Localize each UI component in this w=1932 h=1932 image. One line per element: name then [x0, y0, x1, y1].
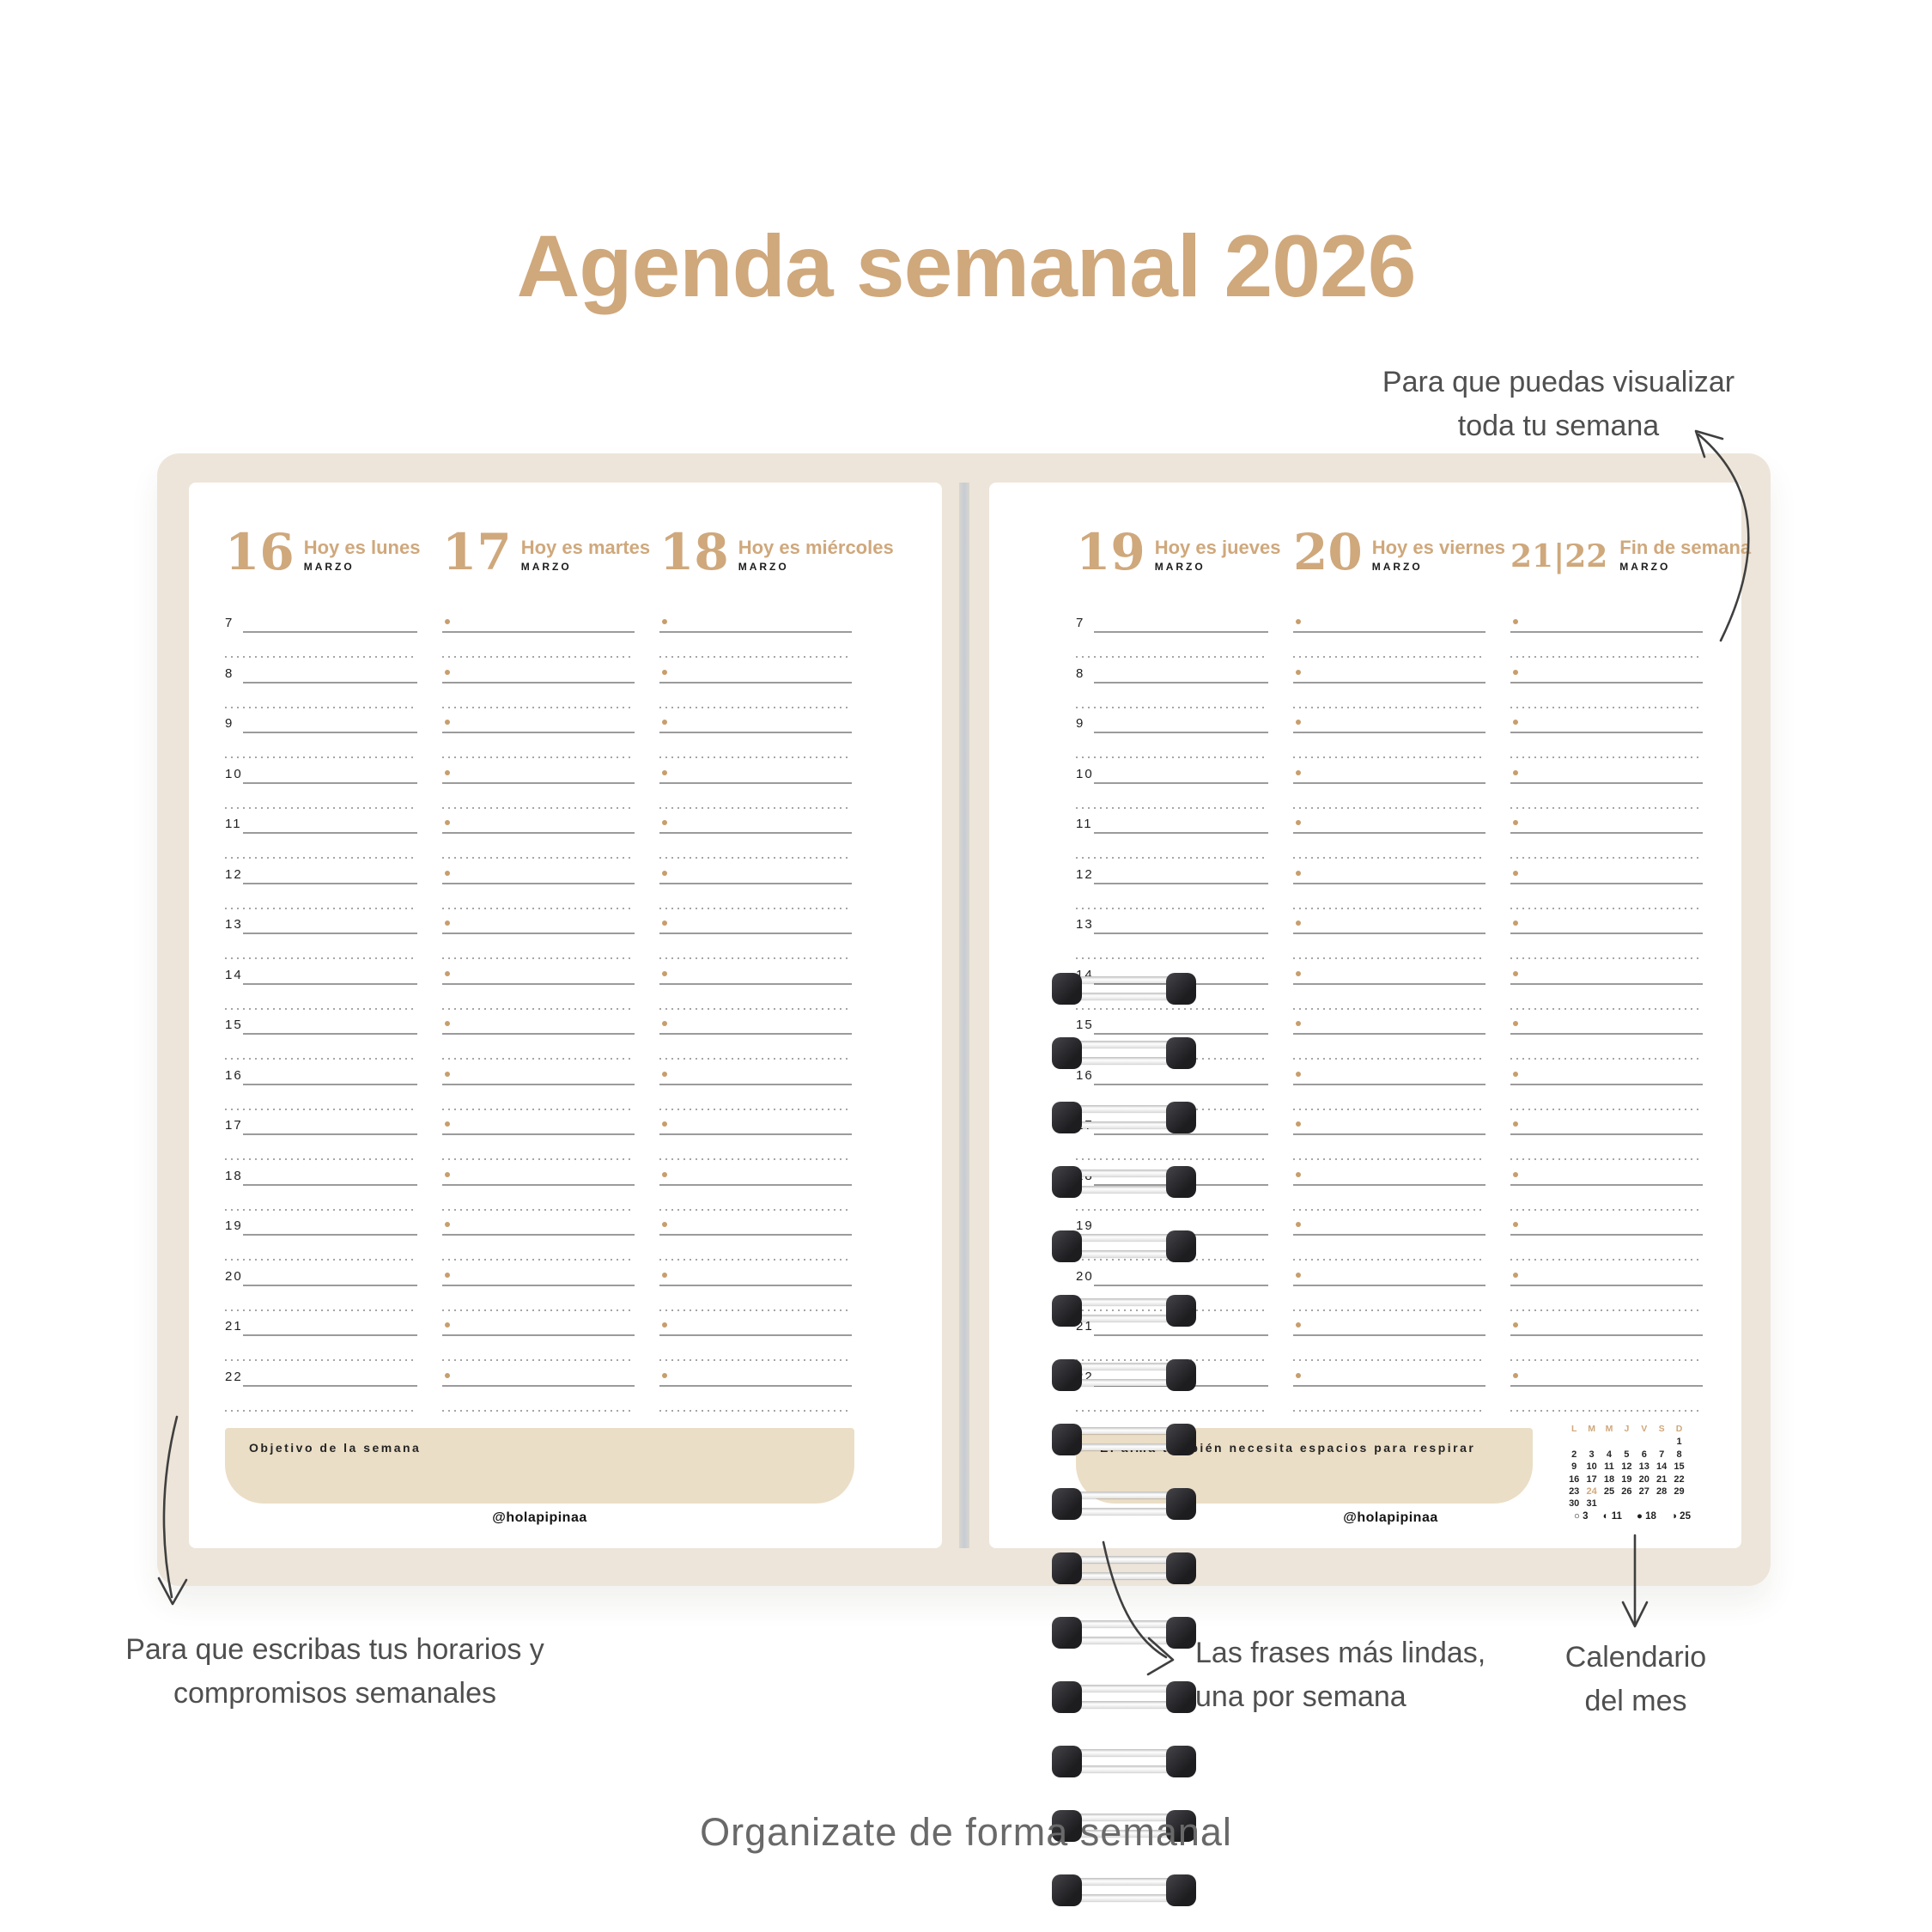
hour-bullet: [1513, 1273, 1518, 1278]
half-hour-dotted-line: [225, 957, 417, 959]
annotation-month-calendar: Calendario del mes: [1507, 1636, 1765, 1723]
hour-bullet: [662, 971, 667, 976]
hour-label: 12: [225, 868, 243, 881]
ring-wire: [1062, 1894, 1186, 1901]
hour-line: [442, 832, 635, 834]
hour-line: [1510, 682, 1703, 683]
hour-bullet: [445, 1021, 450, 1026]
hour-line: [243, 1285, 417, 1286]
hour-line: [659, 682, 852, 683]
hour-line: [243, 832, 417, 834]
hour-line: [1293, 883, 1485, 884]
hour-bullet: [662, 619, 667, 624]
hour-label: 7: [225, 617, 234, 629]
half-hour-dotted-line: [1293, 1359, 1485, 1361]
hour-label: 22: [225, 1370, 243, 1383]
ring-wire: [1062, 1572, 1186, 1579]
day-label: Hoy es martes: [521, 538, 650, 557]
hour-line: [243, 782, 417, 784]
hour-line: [1510, 933, 1703, 934]
page-title: Agenda semanal 2026: [0, 216, 1932, 317]
hour-line: [1094, 1385, 1268, 1387]
half-hour-dotted-line: [442, 1109, 635, 1110]
hour-bullet: [1513, 820, 1518, 825]
hour-bullet: [1296, 1222, 1301, 1227]
hour-bullet: [1296, 1121, 1301, 1127]
half-hour-dotted-line: [1293, 1008, 1485, 1010]
half-hour-dotted-line: [225, 707, 417, 708]
half-hour-dotted-line: [1076, 957, 1268, 959]
hour-line: [442, 682, 635, 683]
hour-line: [659, 983, 852, 985]
hour-line: [1510, 832, 1703, 834]
page-gap-seam: [959, 483, 969, 1548]
binding-ring: [1052, 1552, 1196, 1584]
ring-hole: [1052, 1746, 1082, 1777]
hour-bullet: [445, 1322, 450, 1327]
notebook: Objetivo de la semana @holapipinaa 16Hoy…: [157, 453, 1771, 1586]
hour-line: [1293, 1334, 1485, 1336]
day-header: 20Hoy es viernesMARZO: [1293, 527, 1505, 577]
half-hour-dotted-line: [1076, 756, 1268, 758]
hour-line: [442, 933, 635, 934]
half-hour-dotted-line: [1293, 957, 1485, 959]
hour-line: [1293, 682, 1485, 683]
hour-bullet: [445, 820, 450, 825]
hour-line: [243, 732, 417, 733]
half-hour-dotted-line: [1510, 1008, 1703, 1010]
hour-line: [659, 1133, 852, 1135]
half-hour-dotted-line: [659, 756, 852, 758]
half-hour-dotted-line: [1293, 857, 1485, 859]
hour-bullet: [445, 971, 450, 976]
half-hour-dotted-line: [225, 1309, 417, 1311]
hour-bullet: [445, 871, 450, 876]
hour-bullet: [662, 1373, 667, 1378]
ring-wire: [1062, 1765, 1186, 1772]
hour-label: 21: [1076, 1320, 1094, 1333]
half-hour-dotted-line: [1076, 908, 1268, 909]
ring-hole: [1052, 1874, 1082, 1906]
hour-bullet: [662, 871, 667, 876]
half-hour-dotted-line: [1076, 1058, 1268, 1060]
hour-label: 22: [1076, 1370, 1094, 1383]
hour-bullet: [1296, 971, 1301, 976]
hour-line: [1094, 1334, 1268, 1336]
half-hour-dotted-line: [1510, 1259, 1703, 1261]
day-number: 16: [225, 527, 295, 577]
hour-bullet: [1296, 1273, 1301, 1278]
half-hour-dotted-line: [1510, 1359, 1703, 1361]
hour-label: 9: [225, 717, 234, 730]
bottom-caption: Organizate de forma semanal: [0, 1810, 1932, 1855]
half-hour-dotted-line: [225, 1410, 417, 1412]
hour-bullet: [662, 1121, 667, 1127]
hour-line: [1510, 1133, 1703, 1135]
half-hour-dotted-line: [225, 1359, 417, 1361]
half-hour-dotted-line: [442, 1008, 635, 1010]
hour-label: 11: [225, 817, 242, 830]
day-number: 21|22: [1510, 527, 1607, 572]
half-hour-dotted-line: [1510, 1058, 1703, 1060]
hour-line: [1510, 631, 1703, 633]
day-column: 21|22Fin de semanaMARZO: [1510, 483, 1703, 1548]
half-hour-dotted-line: [1293, 1309, 1485, 1311]
hour-label: 8: [225, 667, 234, 680]
half-hour-dotted-line: [442, 656, 635, 658]
hour-label: 14: [1076, 969, 1094, 981]
hour-bullet: [1513, 1322, 1518, 1327]
hour-line: [1293, 983, 1485, 985]
hour-line: [1293, 832, 1485, 834]
half-hour-dotted-line: [1510, 1209, 1703, 1211]
hour-line: [659, 1285, 852, 1286]
half-hour-dotted-line: [442, 1359, 635, 1361]
hour-line: [1094, 983, 1268, 985]
hour-line: [1094, 1133, 1268, 1135]
hour-line: [1094, 1234, 1268, 1236]
hour-line: [442, 1334, 635, 1336]
hour-line: [442, 1234, 635, 1236]
hour-line: [243, 1133, 417, 1135]
hour-line: [1293, 1133, 1485, 1135]
annotation-line: toda tu semana: [1357, 404, 1760, 448]
half-hour-dotted-line: [1510, 656, 1703, 658]
day-number: 20: [1293, 527, 1363, 577]
day-header: 16Hoy es lunesMARZO: [225, 527, 420, 577]
hour-bullet: [1513, 1222, 1518, 1227]
hour-label: 19: [1076, 1219, 1094, 1232]
hour-line: [243, 682, 417, 683]
half-hour-dotted-line: [659, 707, 852, 708]
hour-line: [1094, 782, 1268, 784]
half-hour-dotted-line: [225, 857, 417, 859]
ring-hole: [1166, 1681, 1196, 1713]
half-hour-dotted-line: [442, 756, 635, 758]
half-hour-dotted-line: [659, 1359, 852, 1361]
day-month-label: MARZO: [1619, 562, 1751, 572]
ring-hole: [1166, 1617, 1196, 1649]
half-hour-dotted-line: [1076, 1309, 1268, 1311]
hour-label: 11: [1076, 817, 1093, 830]
hour-line: [1293, 1234, 1485, 1236]
hour-line: [1094, 1084, 1268, 1085]
hour-bullet: [1296, 619, 1301, 624]
hour-label: 17: [1076, 1119, 1094, 1132]
half-hour-dotted-line: [442, 807, 635, 809]
hour-bullet: [1513, 920, 1518, 926]
hour-bullet: [1296, 1322, 1301, 1327]
hour-line: [442, 1285, 635, 1286]
hour-bullet: [1513, 971, 1518, 976]
hour-line: [659, 782, 852, 784]
day-label: Hoy es miércoles: [738, 538, 894, 557]
day-texts: Hoy es lunesMARZO: [304, 527, 421, 572]
half-hour-dotted-line: [659, 908, 852, 909]
day-label: Hoy es viernes: [1372, 538, 1505, 557]
half-hour-dotted-line: [1076, 1410, 1268, 1412]
half-hour-dotted-line: [659, 1109, 852, 1110]
half-hour-dotted-line: [442, 857, 635, 859]
hour-bullet: [1296, 1072, 1301, 1077]
annotation-line: del mes: [1507, 1680, 1765, 1723]
hour-bullet: [1296, 871, 1301, 876]
half-hour-dotted-line: [442, 908, 635, 909]
hour-bullet: [1296, 1172, 1301, 1177]
hour-bullet: [445, 920, 450, 926]
annotation-line: Calendario: [1507, 1636, 1765, 1680]
hour-line: [243, 631, 417, 633]
hour-bullet: [1513, 770, 1518, 775]
hour-line: [1293, 1033, 1485, 1035]
ring-wire: [1062, 1685, 1186, 1692]
page-left-content: Objetivo de la semana @holapipinaa 16Hoy…: [225, 483, 854, 1548]
half-hour-dotted-line: [1510, 1109, 1703, 1110]
hour-bullet: [445, 1222, 450, 1227]
half-hour-dotted-line: [225, 1259, 417, 1261]
half-hour-dotted-line: [659, 1158, 852, 1160]
half-hour-dotted-line: [225, 1109, 417, 1110]
hour-bullet: [662, 1222, 667, 1227]
half-hour-dotted-line: [659, 957, 852, 959]
hour-line: [442, 631, 635, 633]
hour-line: [442, 883, 635, 884]
ring-wire: [1062, 1556, 1186, 1563]
hour-line: [243, 883, 417, 884]
half-hour-dotted-line: [1293, 807, 1485, 809]
annotation-line: Para que puedas visualizar: [1357, 361, 1760, 404]
notebook-page-right: El alma también necesita espacios para r…: [989, 483, 1741, 1548]
half-hour-dotted-line: [442, 1158, 635, 1160]
hour-label: 17: [225, 1119, 243, 1132]
hour-line: [659, 1184, 852, 1186]
hour-line: [1510, 1334, 1703, 1336]
hour-bullet: [1296, 670, 1301, 675]
half-hour-dotted-line: [1510, 908, 1703, 909]
hour-line: [659, 832, 852, 834]
hour-line: [1293, 1285, 1485, 1286]
half-hour-dotted-line: [1510, 807, 1703, 809]
hour-line: [1094, 933, 1268, 934]
hour-bullet: [662, 1021, 667, 1026]
hour-label: 15: [225, 1018, 243, 1031]
half-hour-dotted-line: [1510, 857, 1703, 859]
half-hour-dotted-line: [1293, 1158, 1485, 1160]
hour-line: [442, 1033, 635, 1035]
ring-wire: [1062, 1701, 1186, 1708]
hour-label: 16: [225, 1069, 243, 1082]
half-hour-dotted-line: [1293, 908, 1485, 909]
hour-line: [1510, 782, 1703, 784]
page-right-content: El alma también necesita espacios para r…: [1076, 483, 1705, 1548]
half-hour-dotted-line: [1293, 707, 1485, 708]
half-hour-dotted-line: [1076, 1158, 1268, 1160]
hour-bullet: [445, 720, 450, 725]
hour-bullet: [1296, 820, 1301, 825]
ring-wire: [1062, 1637, 1186, 1643]
hour-label: 8: [1076, 667, 1084, 680]
annotation-line: Para que escribas tus horarios y: [77, 1628, 592, 1672]
half-hour-dotted-line: [1076, 1359, 1268, 1361]
hour-bullet: [1513, 1172, 1518, 1177]
half-hour-dotted-line: [1293, 1109, 1485, 1110]
hour-line: [1094, 732, 1268, 733]
half-hour-dotted-line: [1076, 1209, 1268, 1211]
hour-bullet: [1513, 720, 1518, 725]
day-month-label: MARZO: [304, 562, 421, 572]
hour-label: 7: [1076, 617, 1084, 629]
hour-bullet: [1513, 1373, 1518, 1378]
hour-bullet: [662, 770, 667, 775]
day-texts: Hoy es viernesMARZO: [1372, 527, 1505, 572]
half-hour-dotted-line: [1510, 1309, 1703, 1311]
half-hour-dotted-line: [1076, 807, 1268, 809]
half-hour-dotted-line: [225, 1158, 417, 1160]
hour-bullet: [1296, 920, 1301, 926]
hour-line: [243, 1184, 417, 1186]
hour-line: [659, 883, 852, 884]
hour-line: [659, 1385, 852, 1387]
hour-label: 21: [225, 1320, 243, 1333]
hour-label: 14: [225, 969, 243, 981]
half-hour-dotted-line: [225, 807, 417, 809]
half-hour-dotted-line: [1293, 1259, 1485, 1261]
hour-line: [1094, 883, 1268, 884]
hour-bullet: [1513, 670, 1518, 675]
day-column: 16Hoy es lunesMARZO789101112131415161718…: [225, 483, 417, 1548]
hour-bullet: [662, 820, 667, 825]
ring-hole: [1166, 1746, 1196, 1777]
day-number: 17: [442, 527, 512, 577]
half-hour-dotted-line: [442, 1058, 635, 1060]
hour-label: 15: [1076, 1018, 1094, 1031]
half-hour-dotted-line: [1293, 756, 1485, 758]
notebook-page-left: Objetivo de la semana @holapipinaa 16Hoy…: [189, 483, 942, 1548]
binding-ring: [1052, 1617, 1196, 1649]
hour-label: 20: [1076, 1270, 1094, 1283]
hour-line: [1510, 732, 1703, 733]
ring-wire: [1062, 1878, 1186, 1885]
half-hour-dotted-line: [1076, 707, 1268, 708]
half-hour-dotted-line: [659, 1259, 852, 1261]
annotation-schedule: Para que escribas tus horarios y comprom…: [77, 1628, 592, 1716]
half-hour-dotted-line: [659, 1309, 852, 1311]
half-hour-dotted-line: [1293, 656, 1485, 658]
hour-label: 10: [225, 768, 243, 781]
day-label: Fin de semana: [1619, 538, 1751, 557]
half-hour-dotted-line: [442, 957, 635, 959]
hour-line: [442, 782, 635, 784]
hour-bullet: [1513, 1021, 1518, 1026]
half-hour-dotted-line: [225, 1209, 417, 1211]
ring-hole: [1052, 1552, 1082, 1584]
half-hour-dotted-line: [1510, 1410, 1703, 1412]
hour-bullet: [445, 1373, 450, 1378]
hour-bullet: [445, 670, 450, 675]
day-label: Hoy es jueves: [1155, 538, 1281, 557]
day-column: 20Hoy es viernesMARZO: [1293, 483, 1485, 1548]
hour-line: [659, 1033, 852, 1035]
hour-line: [659, 933, 852, 934]
half-hour-dotted-line: [659, 1008, 852, 1010]
half-hour-dotted-line: [1076, 1259, 1268, 1261]
half-hour-dotted-line: [442, 1309, 635, 1311]
day-header: 18Hoy es miércolesMARZO: [659, 527, 894, 577]
ring-wire: [1062, 1749, 1186, 1756]
half-hour-dotted-line: [1076, 1008, 1268, 1010]
hour-label: 13: [225, 918, 243, 931]
half-hour-dotted-line: [442, 1209, 635, 1211]
hour-bullet: [445, 1121, 450, 1127]
half-hour-dotted-line: [225, 1058, 417, 1060]
hour-line: [1094, 1285, 1268, 1286]
hour-line: [1510, 1285, 1703, 1286]
hour-line: [243, 1084, 417, 1085]
hour-line: [1510, 1033, 1703, 1035]
hour-bullet: [1296, 1021, 1301, 1026]
hour-line: [1094, 1184, 1268, 1186]
ring-hole: [1052, 1617, 1082, 1649]
half-hour-dotted-line: [225, 908, 417, 909]
hour-bullet: [1513, 1121, 1518, 1127]
hour-label: 10: [1076, 768, 1094, 781]
hour-line: [1094, 682, 1268, 683]
half-hour-dotted-line: [1293, 1209, 1485, 1211]
hour-line: [1293, 1084, 1485, 1085]
hour-line: [659, 631, 852, 633]
hour-line: [659, 1234, 852, 1236]
half-hour-dotted-line: [1076, 857, 1268, 859]
binding-ring: [1052, 1746, 1196, 1777]
ring-hole: [1166, 1552, 1196, 1584]
hour-label: 9: [1076, 717, 1084, 730]
half-hour-dotted-line: [442, 1410, 635, 1412]
day-header: 19Hoy es juevesMARZO: [1076, 527, 1280, 577]
hour-line: [1510, 883, 1703, 884]
half-hour-dotted-line: [659, 1410, 852, 1412]
day-texts: Hoy es miércolesMARZO: [738, 527, 894, 572]
hour-bullet: [1513, 1072, 1518, 1077]
hour-line: [659, 732, 852, 733]
ring-wire: [1062, 1620, 1186, 1627]
half-hour-dotted-line: [1293, 1410, 1485, 1412]
half-hour-dotted-line: [659, 1209, 852, 1211]
hour-bullet: [1296, 770, 1301, 775]
product-showcase: Agenda semanal 2026 Para que puedas visu…: [0, 0, 1932, 1932]
half-hour-dotted-line: [1510, 707, 1703, 708]
hour-label: 18: [1076, 1170, 1094, 1182]
hour-bullet: [445, 770, 450, 775]
hour-line: [442, 1184, 635, 1186]
day-header: 21|22Fin de semanaMARZO: [1510, 527, 1751, 572]
hour-line: [1510, 983, 1703, 985]
annotation-line: compromisos semanales: [77, 1672, 592, 1716]
hour-line: [243, 983, 417, 985]
half-hour-dotted-line: [442, 1259, 635, 1261]
day-number: 19: [1076, 527, 1145, 577]
hour-bullet: [445, 619, 450, 624]
hour-line: [1293, 1184, 1485, 1186]
hour-line: [1293, 1385, 1485, 1387]
hour-label: 20: [225, 1270, 243, 1283]
hour-line: [1293, 933, 1485, 934]
hour-label: 19: [225, 1219, 243, 1232]
hour-bullet: [1513, 871, 1518, 876]
hour-bullet: [445, 1072, 450, 1077]
hour-bullet: [445, 1172, 450, 1177]
hour-bullet: [1513, 619, 1518, 624]
hour-line: [243, 933, 417, 934]
